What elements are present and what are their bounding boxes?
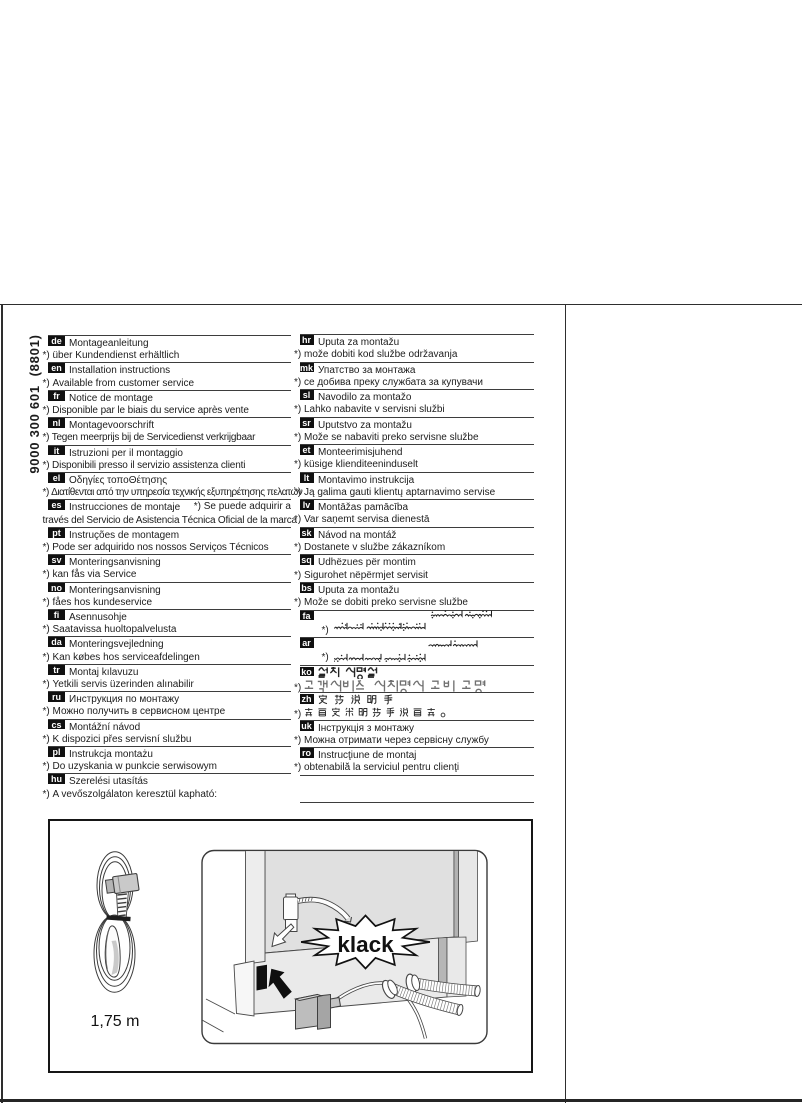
svg-text:klack: klack: [338, 932, 395, 957]
